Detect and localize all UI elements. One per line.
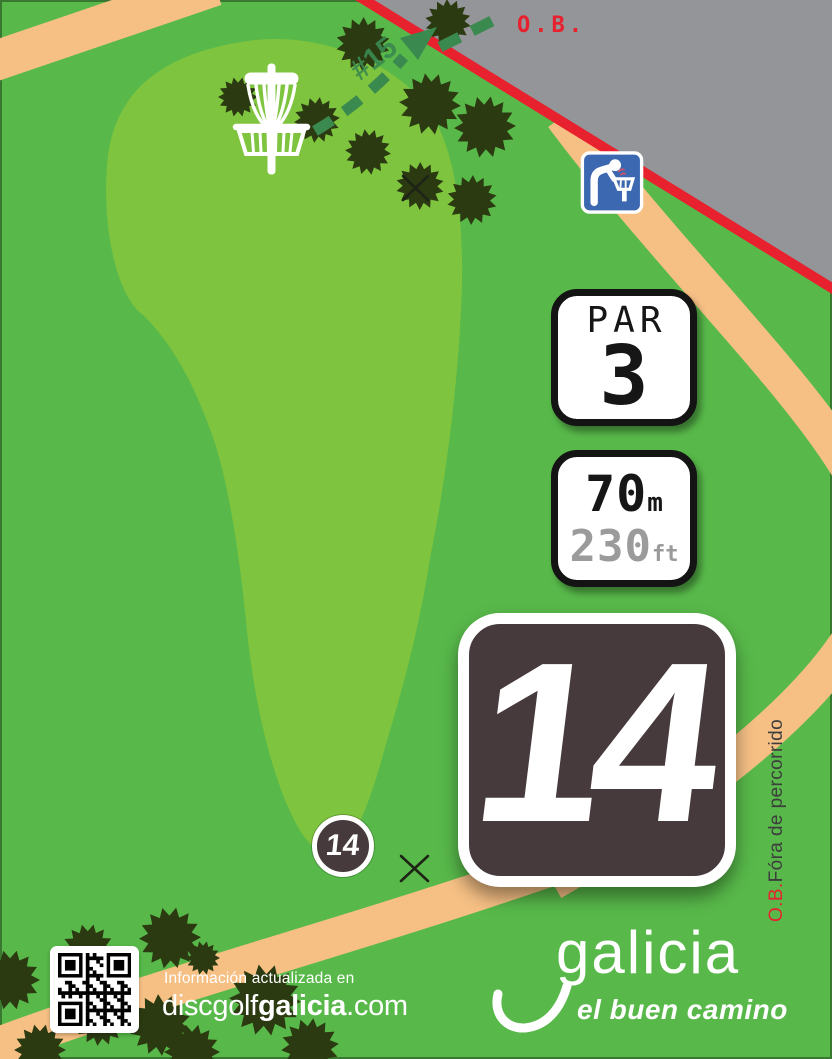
footer-url-bold: galicia: [258, 990, 346, 1022]
hole-map-poster: O.B. #15 PAR 3 70 m 230 ft 1: [0, 0, 832, 1059]
course-map: [0, 0, 832, 1059]
distance-feet: 230 ft: [570, 525, 679, 569]
ob-side-label-text: Fóra de percorrido: [766, 719, 787, 883]
tee-marker: 14: [312, 815, 374, 877]
distance-meters-unit: m: [647, 490, 663, 516]
distance-badge: 70 m 230 ft: [551, 450, 697, 587]
distance-feet-unit: ft: [652, 544, 679, 566]
ob-side-label-prefix: O.B.: [766, 882, 787, 922]
tee-number: 14: [325, 829, 362, 863]
par-value: 3: [599, 339, 648, 414]
hole-number: 14: [464, 629, 722, 857]
distance-feet-value: 230: [570, 525, 652, 569]
footer-url: discgolfgalicia.com: [162, 990, 408, 1023]
drinking-fountain-sign-icon: [580, 151, 644, 214]
footer-url-suffix: .com: [346, 990, 408, 1022]
distance-meters: 70 m: [585, 469, 663, 519]
galicia-logo-wordmark: galicia: [556, 918, 740, 987]
tree-icon: [448, 89, 522, 165]
par-badge: PAR 3: [551, 289, 697, 426]
logo-swoosh: [497, 986, 567, 1028]
fairway-shape: [106, 39, 462, 857]
ob-side-label: O.B.Fóra de percorrido: [766, 650, 788, 922]
distance-meters-value: 70: [585, 469, 647, 519]
path-top-left: [0, 0, 215, 62]
ob-label: O.B.: [517, 13, 586, 38]
footer-info-text: Información actualizada en: [164, 970, 354, 988]
tree-icon: [0, 951, 40, 1010]
footer-url-prefix: discgolf: [162, 990, 258, 1022]
hole-number-badge: 14: [458, 613, 736, 887]
x-mark-icon: [401, 856, 428, 881]
galicia-logo-tagline: el buen camino: [577, 994, 788, 1026]
qr-code: [50, 946, 139, 1033]
